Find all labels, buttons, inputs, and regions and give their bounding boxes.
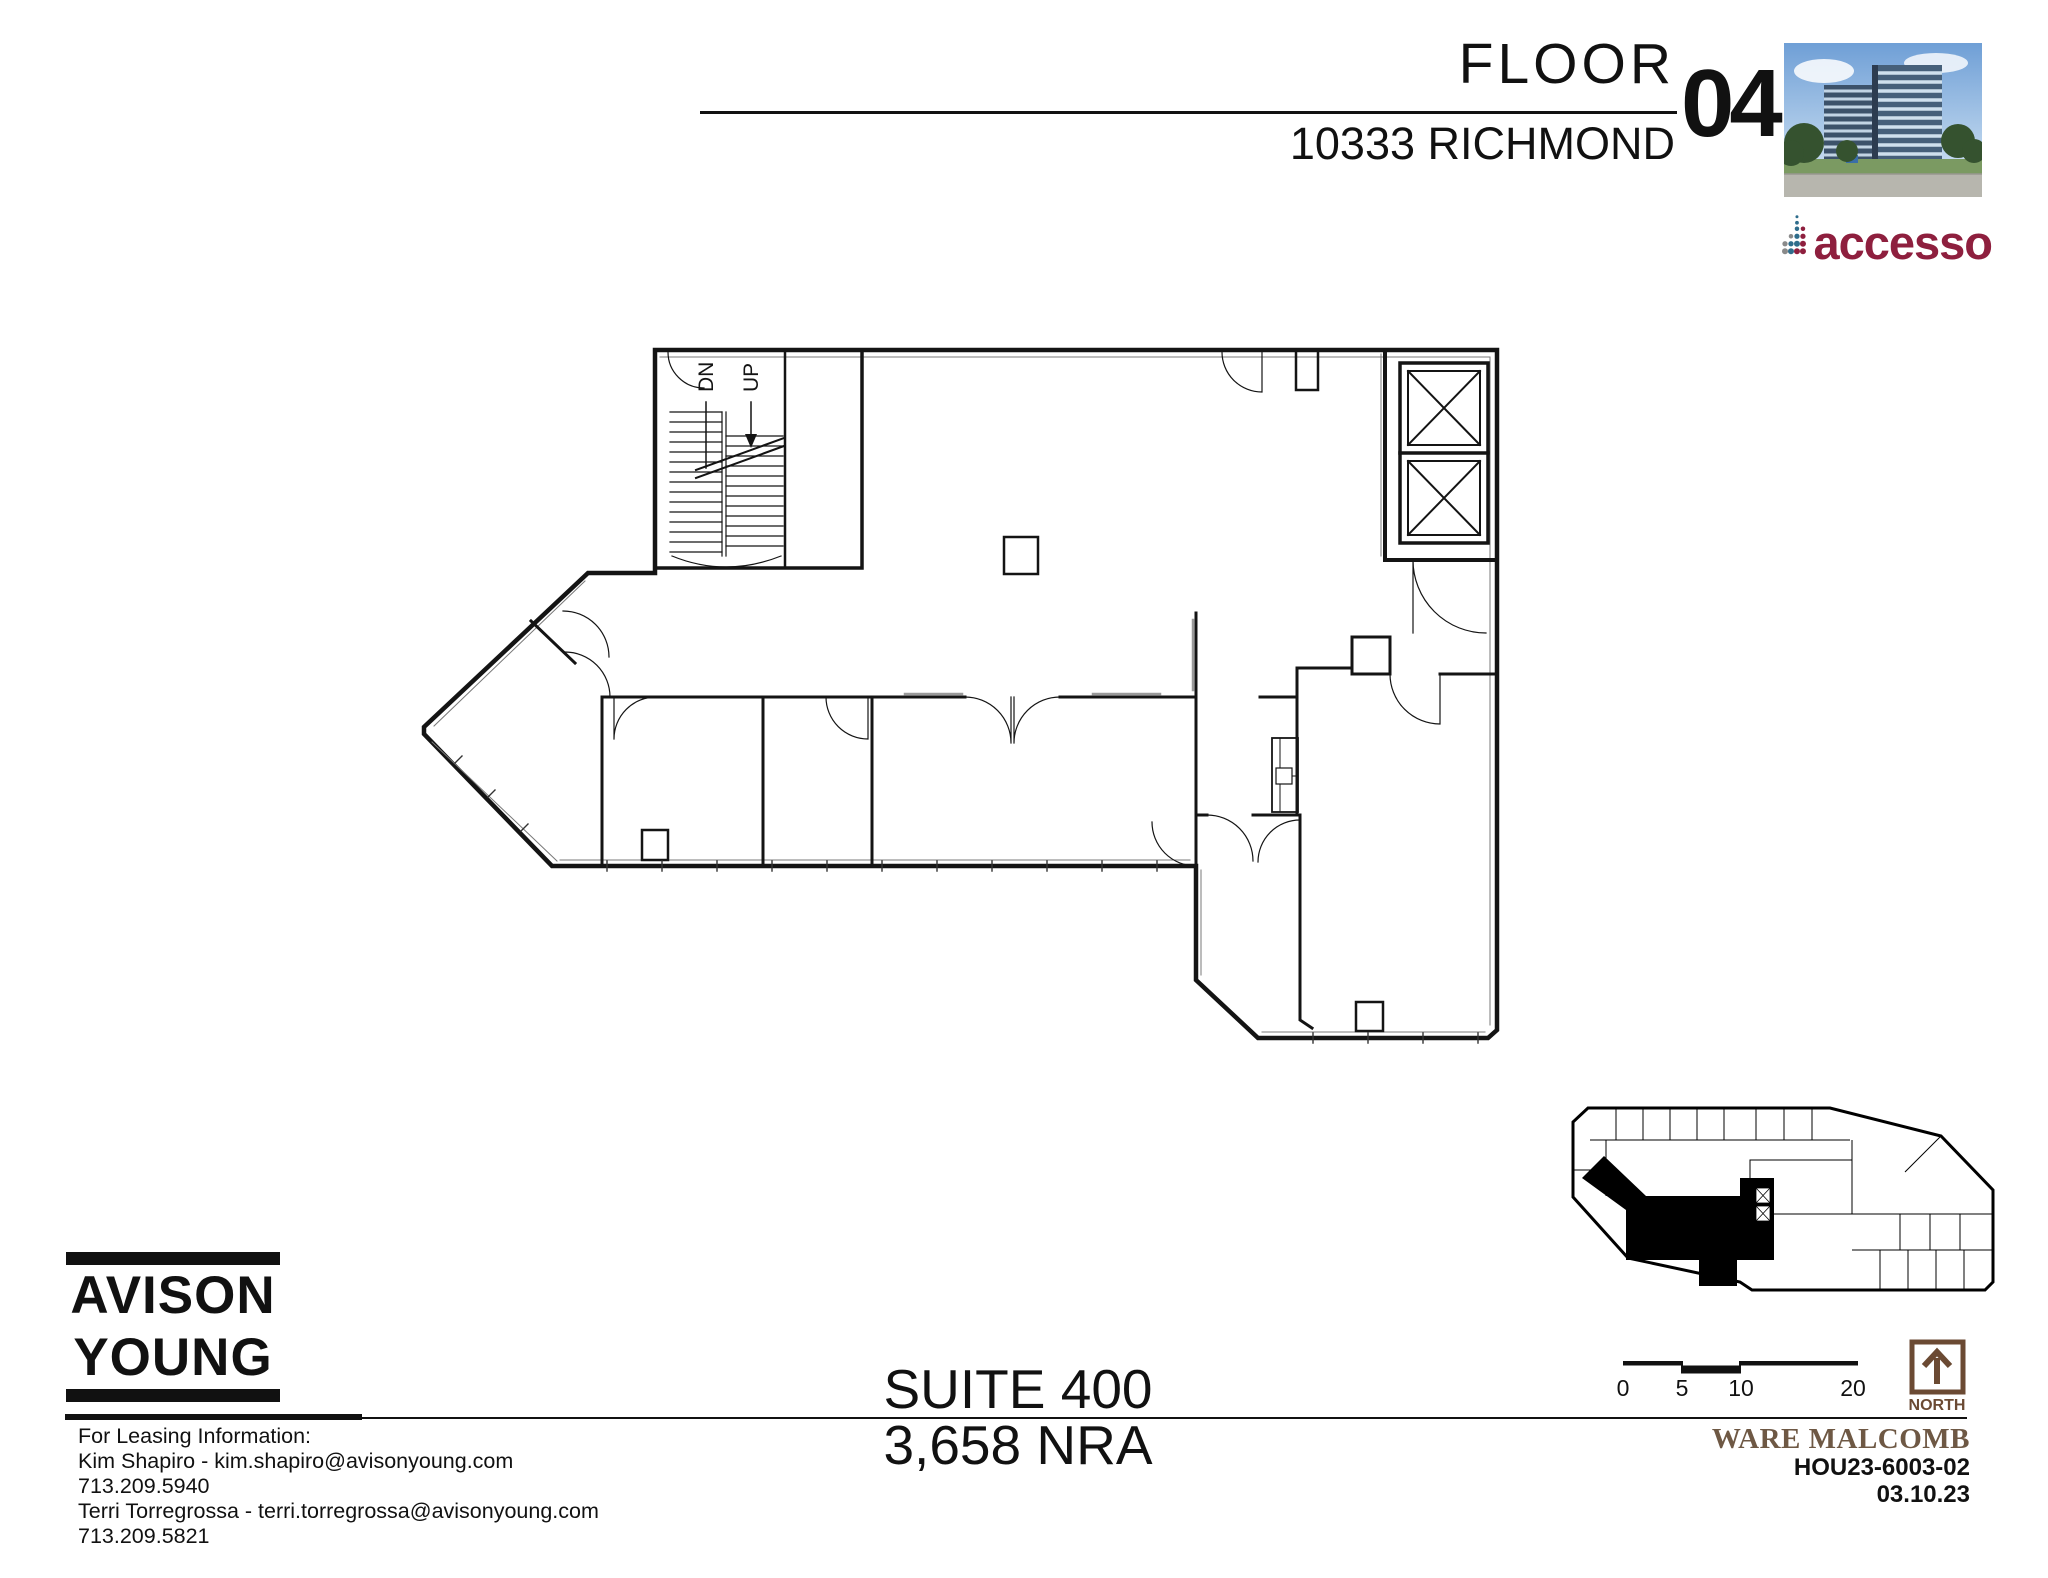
window-mullions [455, 756, 1478, 1043]
corridor-door-arc [1413, 560, 1486, 633]
scale-label-20: 20 [1840, 1375, 1866, 1401]
stair-treads [670, 412, 783, 567]
extension-door-arcs [1152, 815, 1300, 866]
scale-bar: 0 5 10 20 [1617, 1361, 1866, 1401]
logo-bar-top [66, 1252, 280, 1265]
leasing-heading: For Leasing Information: [78, 1424, 599, 1449]
scale-label-10: 10 [1728, 1375, 1754, 1401]
leasing-contact-1: Kim Shapiro - kim.shapiro@avisonyoung.co… [78, 1449, 599, 1474]
glazing [905, 620, 1193, 694]
suite-name: SUITE 400 [818, 1363, 1218, 1415]
right-wing-interior [1152, 560, 1497, 1028]
closet-door-arc [1390, 674, 1440, 724]
north-arrow: NORTH [1909, 1342, 1966, 1414]
leasing-info: For Leasing Information: Kim Shapiro - k… [78, 1424, 599, 1549]
logo-bar-bottom [66, 1389, 280, 1402]
stair-dn-label: DN [695, 362, 718, 392]
leasing-contact-2: Terri Torregrossa - terri.torregrossa@av… [78, 1499, 599, 1524]
north-label: NORTH [1909, 1397, 1966, 1414]
architect-title-block: WARE MALCOMB HOU23-6003-02 03.10.23 [1450, 1424, 1970, 1508]
scale-label-5: 5 [1676, 1375, 1689, 1401]
suite-area: 3,658 NRA [818, 1419, 1218, 1471]
double-door-arcs [965, 697, 1060, 743]
stair-up-label: UP [740, 363, 763, 392]
key-plan [1573, 1108, 1993, 1290]
avison-young-logo: AVISON YOUNG [66, 1252, 280, 1402]
suite-title-block: SUITE 400 3,658 NRA [818, 1363, 1218, 1471]
leasing-phone-2: 713.209.5821 [78, 1524, 599, 1549]
office-door-arcs [614, 697, 868, 739]
elevator-core [1222, 350, 1497, 560]
suite-entry-door [1222, 352, 1262, 392]
kitchen-counter [1272, 738, 1298, 812]
bay-partition [531, 621, 575, 663]
young-word: YOUNG [66, 1327, 280, 1389]
sheet-date: 03.10.23 [1450, 1481, 1970, 1508]
drawing-canvas: DN UP [0, 0, 2048, 1578]
entry-vestibule [1296, 350, 1318, 390]
suite-plan: DN UP [424, 350, 1497, 1043]
firm-name: WARE MALCOMB [1450, 1424, 1970, 1454]
project-number: HOU23-6003-02 [1450, 1454, 1970, 1481]
bay-door-arcs [563, 611, 610, 697]
footer-rule-accent [65, 1414, 362, 1420]
stairwell: DN UP [655, 350, 862, 568]
avison-word: AVISON [66, 1265, 280, 1327]
closet [1352, 637, 1390, 674]
interior-partitions [531, 611, 1196, 866]
floor-plan-sheet: FLOOR 10333 RICHMOND 04 [0, 0, 2048, 1578]
leasing-phone-1: 713.209.5940 [78, 1474, 599, 1499]
scale-label-0: 0 [1617, 1375, 1630, 1401]
